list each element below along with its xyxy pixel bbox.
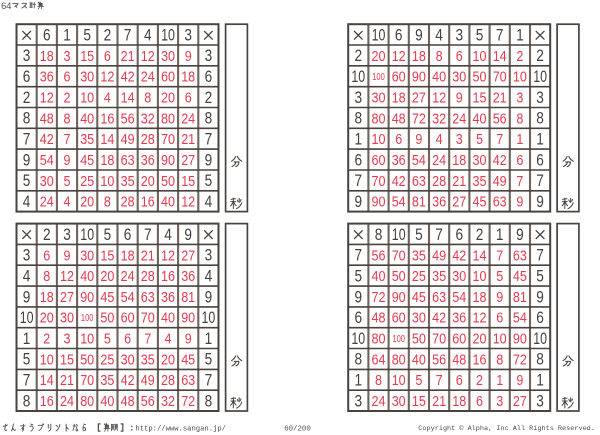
- svg-text:9: 9: [355, 193, 363, 211]
- svg-text:8: 8: [355, 351, 363, 369]
- svg-text:6: 6: [64, 69, 71, 86]
- svg-text:10: 10: [351, 330, 365, 348]
- svg-text:36: 36: [181, 268, 195, 285]
- svg-text:24: 24: [452, 110, 466, 127]
- svg-text:4: 4: [23, 193, 31, 211]
- svg-text:20: 20: [372, 48, 386, 65]
- svg-text:9: 9: [185, 331, 192, 348]
- svg-text:36: 36: [432, 194, 446, 211]
- svg-text:12: 12: [392, 48, 406, 65]
- svg-text:7: 7: [435, 226, 443, 244]
- svg-text:25: 25: [412, 268, 426, 285]
- svg-text:27: 27: [412, 90, 426, 107]
- svg-text:24: 24: [372, 393, 386, 410]
- svg-text:48: 48: [392, 110, 406, 127]
- svg-text:10: 10: [372, 26, 386, 44]
- svg-text:50: 50: [80, 351, 94, 368]
- svg-text:90: 90: [181, 310, 195, 327]
- svg-text:70: 70: [493, 69, 507, 86]
- svg-text:10: 10: [80, 90, 94, 107]
- svg-text:16: 16: [473, 351, 487, 368]
- svg-text:6: 6: [355, 309, 363, 327]
- svg-text:20: 20: [80, 194, 94, 211]
- svg-text:18: 18: [392, 90, 406, 107]
- svg-text:1: 1: [536, 372, 544, 390]
- svg-text:15: 15: [100, 247, 114, 264]
- svg-text:7: 7: [355, 172, 363, 190]
- svg-text:28: 28: [432, 173, 446, 190]
- svg-text:20: 20: [40, 310, 54, 327]
- svg-text:80: 80: [372, 331, 386, 348]
- svg-text:5: 5: [355, 268, 363, 286]
- svg-text:70: 70: [392, 247, 406, 264]
- svg-text:2: 2: [43, 226, 51, 244]
- svg-text:4: 4: [165, 331, 172, 348]
- svg-text:14: 14: [100, 131, 114, 148]
- svg-text:28: 28: [141, 131, 155, 148]
- svg-text:4: 4: [436, 131, 443, 148]
- svg-text:9: 9: [456, 90, 463, 107]
- svg-text:2: 2: [205, 89, 213, 107]
- svg-text:24: 24: [181, 110, 195, 127]
- svg-text:3: 3: [184, 26, 192, 44]
- svg-text:1: 1: [516, 26, 524, 44]
- svg-text:4: 4: [164, 226, 172, 244]
- svg-text:9: 9: [64, 247, 71, 264]
- svg-text:10: 10: [473, 48, 487, 65]
- svg-text:7: 7: [124, 26, 132, 44]
- svg-text:20: 20: [161, 351, 175, 368]
- svg-text:8: 8: [516, 110, 523, 127]
- svg-text:6: 6: [395, 131, 402, 148]
- svg-text:10: 10: [372, 131, 386, 148]
- svg-text:90: 90: [372, 194, 386, 211]
- svg-text:10: 10: [533, 330, 547, 348]
- svg-text:30: 30: [473, 152, 487, 169]
- svg-text:24: 24: [141, 69, 155, 86]
- svg-text:8: 8: [375, 226, 383, 244]
- svg-text:8: 8: [144, 90, 151, 107]
- svg-text:1: 1: [63, 26, 71, 44]
- svg-text:49: 49: [121, 131, 135, 148]
- svg-text:64: 64: [1, 1, 11, 11]
- svg-text:10: 10: [80, 226, 94, 244]
- svg-text:1: 1: [496, 372, 503, 389]
- svg-text:5: 5: [205, 172, 213, 190]
- svg-text:9: 9: [496, 289, 503, 306]
- svg-text:54: 54: [40, 152, 54, 169]
- svg-text:21: 21: [493, 90, 507, 107]
- svg-text:60: 60: [392, 310, 406, 327]
- svg-text:20: 20: [100, 268, 114, 285]
- svg-text:15: 15: [412, 393, 426, 410]
- svg-text:90: 90: [161, 152, 175, 169]
- svg-text:80: 80: [392, 351, 406, 368]
- svg-text:2: 2: [476, 226, 484, 244]
- svg-text:42: 42: [493, 152, 507, 169]
- svg-text:25: 25: [100, 351, 114, 368]
- svg-text:18: 18: [121, 247, 135, 264]
- svg-text:14: 14: [121, 90, 135, 107]
- svg-text:2: 2: [355, 47, 363, 65]
- svg-text:48: 48: [40, 110, 54, 127]
- svg-text:7: 7: [23, 131, 31, 149]
- svg-text:60: 60: [392, 69, 406, 86]
- svg-text:8: 8: [23, 392, 31, 410]
- svg-text:1: 1: [355, 372, 363, 390]
- svg-text:54: 54: [392, 194, 406, 211]
- svg-text:56: 56: [432, 351, 446, 368]
- svg-text:6: 6: [23, 68, 31, 86]
- svg-text:60: 60: [452, 331, 466, 348]
- svg-text:30: 30: [40, 173, 54, 190]
- svg-text:10: 10: [493, 331, 507, 348]
- svg-text:6: 6: [536, 309, 544, 327]
- svg-text:3: 3: [205, 247, 213, 265]
- svg-text:40: 40: [473, 110, 487, 127]
- svg-text:56: 56: [493, 110, 507, 127]
- svg-text:4: 4: [144, 26, 152, 44]
- svg-text:14: 14: [40, 372, 54, 389]
- svg-text:5: 5: [536, 268, 544, 286]
- svg-text:90: 90: [412, 69, 426, 86]
- svg-text:50: 50: [392, 268, 406, 285]
- svg-text:8: 8: [436, 48, 443, 65]
- svg-text:70: 70: [161, 131, 175, 148]
- svg-text:10: 10: [392, 226, 406, 244]
- svg-text:5: 5: [104, 226, 112, 244]
- svg-text:56: 56: [372, 247, 386, 264]
- svg-text:16: 16: [100, 110, 114, 127]
- svg-text:32: 32: [141, 110, 155, 127]
- svg-text:45: 45: [80, 152, 94, 169]
- svg-text:4: 4: [64, 194, 71, 211]
- svg-text:70: 70: [80, 372, 94, 389]
- svg-text:72: 72: [181, 393, 195, 410]
- svg-text:12: 12: [473, 310, 487, 327]
- svg-text:9: 9: [205, 151, 213, 169]
- svg-text:27: 27: [452, 194, 466, 211]
- svg-text:60: 60: [121, 310, 135, 327]
- svg-text:1: 1: [496, 226, 504, 244]
- svg-text:40: 40: [80, 110, 94, 127]
- svg-text:63: 63: [121, 152, 135, 169]
- svg-text:6: 6: [456, 226, 464, 244]
- svg-text:21: 21: [432, 393, 446, 410]
- svg-text:3: 3: [23, 47, 31, 65]
- svg-text:8: 8: [205, 392, 213, 410]
- svg-text:6: 6: [355, 151, 363, 169]
- svg-text:12: 12: [40, 90, 54, 107]
- svg-text:18: 18: [473, 289, 487, 306]
- svg-text:18: 18: [40, 289, 54, 306]
- svg-text:21: 21: [141, 247, 155, 264]
- svg-text:7: 7: [496, 26, 504, 44]
- svg-text:5: 5: [476, 26, 484, 44]
- svg-text:64: 64: [372, 351, 386, 368]
- svg-text:10: 10: [202, 309, 216, 327]
- svg-text:28: 28: [141, 268, 155, 285]
- svg-text:8: 8: [536, 351, 544, 369]
- svg-text:50: 50: [473, 69, 487, 86]
- svg-text:10: 10: [351, 68, 365, 86]
- svg-text:9: 9: [415, 26, 423, 44]
- svg-text:6: 6: [496, 310, 503, 327]
- svg-text:15: 15: [473, 90, 487, 107]
- svg-text:63: 63: [141, 289, 155, 306]
- svg-text:42: 42: [392, 173, 406, 190]
- svg-text:7: 7: [144, 226, 152, 244]
- svg-text:12: 12: [60, 268, 74, 285]
- svg-text:6: 6: [43, 247, 50, 264]
- svg-text:7: 7: [355, 247, 363, 265]
- svg-text:12: 12: [100, 69, 114, 86]
- svg-text:45: 45: [412, 289, 426, 306]
- svg-text:32: 32: [432, 110, 446, 127]
- svg-text:70: 70: [432, 331, 446, 348]
- svg-text:60: 60: [372, 152, 386, 169]
- svg-text:50: 50: [100, 310, 114, 327]
- svg-text:2: 2: [536, 47, 544, 65]
- svg-text:7: 7: [144, 331, 151, 348]
- svg-text:21: 21: [121, 48, 135, 65]
- svg-text:30: 30: [392, 393, 406, 410]
- svg-text:20: 20: [473, 331, 487, 348]
- svg-text:20: 20: [141, 173, 155, 190]
- svg-text:12: 12: [161, 247, 175, 264]
- svg-text:21: 21: [181, 131, 195, 148]
- svg-text:10: 10: [161, 26, 175, 44]
- svg-text:25: 25: [80, 173, 94, 190]
- svg-text:8: 8: [355, 110, 363, 128]
- svg-text:42: 42: [121, 372, 135, 389]
- svg-text:6: 6: [516, 152, 523, 169]
- svg-text:27: 27: [60, 289, 74, 306]
- svg-text:9: 9: [205, 288, 213, 306]
- svg-text:10: 10: [20, 309, 34, 327]
- svg-text:5: 5: [23, 172, 31, 190]
- svg-text:1: 1: [516, 131, 523, 148]
- svg-text:35: 35: [121, 173, 135, 190]
- svg-text:90: 90: [80, 289, 94, 306]
- svg-text:21: 21: [60, 372, 74, 389]
- svg-text:14: 14: [473, 247, 487, 264]
- svg-text:7: 7: [64, 131, 71, 148]
- svg-text:18: 18: [181, 69, 195, 86]
- svg-text:54: 54: [121, 289, 135, 306]
- svg-text:3: 3: [516, 90, 523, 107]
- svg-text:6: 6: [185, 90, 192, 107]
- svg-text:42: 42: [121, 69, 135, 86]
- svg-text:90: 90: [392, 289, 406, 306]
- svg-text:9: 9: [415, 131, 422, 148]
- svg-text:18: 18: [100, 152, 114, 169]
- svg-text:6: 6: [395, 26, 403, 44]
- svg-text:7: 7: [496, 131, 503, 148]
- svg-text:1: 1: [355, 131, 363, 149]
- svg-text:1: 1: [23, 330, 31, 348]
- svg-text:30: 30: [372, 90, 386, 107]
- svg-text:9: 9: [23, 288, 31, 306]
- svg-text:6: 6: [124, 331, 131, 348]
- svg-text:56: 56: [141, 393, 155, 410]
- svg-text:28: 28: [121, 194, 135, 211]
- svg-text:3: 3: [355, 89, 363, 107]
- svg-text:6: 6: [124, 226, 132, 244]
- svg-text:10: 10: [473, 268, 487, 285]
- svg-text:5: 5: [496, 268, 503, 285]
- svg-text:9: 9: [355, 288, 363, 306]
- svg-text:6: 6: [43, 26, 51, 44]
- svg-text:30: 30: [60, 310, 74, 327]
- svg-text:80: 80: [80, 393, 94, 410]
- svg-text:5: 5: [83, 26, 91, 44]
- svg-text:7: 7: [205, 372, 213, 390]
- svg-text:81: 81: [412, 194, 426, 211]
- svg-text:12: 12: [141, 48, 155, 65]
- svg-text:http://www.sangan.jp/: http://www.sangan.jp/: [135, 425, 226, 433]
- svg-text:3: 3: [64, 48, 71, 65]
- svg-text:60: 60: [161, 69, 175, 86]
- svg-text:4: 4: [23, 268, 31, 286]
- svg-text:6: 6: [104, 48, 111, 65]
- svg-text:30: 30: [161, 48, 175, 65]
- svg-text:10: 10: [533, 68, 547, 86]
- svg-text:40: 40: [80, 268, 94, 285]
- svg-text:80: 80: [372, 110, 386, 127]
- svg-text:81: 81: [181, 289, 195, 306]
- svg-text:9: 9: [185, 48, 192, 65]
- svg-text:45: 45: [181, 351, 195, 368]
- svg-text:30: 30: [452, 268, 466, 285]
- svg-text:30: 30: [412, 310, 426, 327]
- svg-text:63: 63: [432, 289, 446, 306]
- svg-text:30: 30: [452, 69, 466, 86]
- svg-text:3: 3: [63, 226, 71, 244]
- svg-text:2: 2: [64, 90, 71, 107]
- svg-text:5: 5: [415, 226, 423, 244]
- svg-text:9: 9: [516, 226, 524, 244]
- svg-text:30: 30: [80, 69, 94, 86]
- svg-text:10: 10: [40, 351, 54, 368]
- svg-text:100: 100: [392, 334, 405, 345]
- svg-text:40: 40: [372, 268, 386, 285]
- svg-text:10: 10: [513, 69, 527, 86]
- svg-text:5: 5: [23, 351, 31, 369]
- svg-text:54: 54: [452, 289, 466, 306]
- svg-text:2: 2: [476, 372, 483, 389]
- svg-text:72: 72: [412, 110, 426, 127]
- svg-text:54: 54: [412, 152, 426, 169]
- svg-text:5: 5: [415, 372, 422, 389]
- svg-text:36: 36: [161, 289, 175, 306]
- svg-text:30: 30: [121, 351, 135, 368]
- svg-text:48: 48: [121, 393, 135, 410]
- svg-text:36: 36: [392, 152, 406, 169]
- svg-text:7: 7: [516, 173, 523, 190]
- svg-text:8: 8: [104, 194, 111, 211]
- svg-text:10: 10: [100, 173, 114, 190]
- svg-text:4: 4: [205, 268, 213, 286]
- svg-text:7: 7: [536, 172, 544, 190]
- svg-text:35: 35: [141, 351, 155, 368]
- svg-text:35: 35: [473, 173, 487, 190]
- svg-text:70: 70: [372, 173, 386, 190]
- svg-text:72: 72: [513, 351, 527, 368]
- svg-text:50: 50: [412, 331, 426, 348]
- svg-text:63: 63: [181, 372, 195, 389]
- svg-text:5: 5: [476, 131, 483, 148]
- svg-text:12: 12: [432, 90, 446, 107]
- svg-text:35: 35: [100, 372, 114, 389]
- svg-text:15: 15: [181, 173, 195, 190]
- svg-text:49: 49: [141, 372, 155, 389]
- svg-text:36: 36: [141, 152, 155, 169]
- svg-text:15: 15: [80, 48, 94, 65]
- svg-text:70: 70: [141, 310, 155, 327]
- svg-text:9: 9: [64, 152, 71, 169]
- svg-text:9: 9: [536, 193, 544, 211]
- svg-text:10: 10: [392, 372, 406, 389]
- svg-text:4: 4: [435, 26, 443, 44]
- svg-text:40: 40: [412, 351, 426, 368]
- svg-text:9: 9: [516, 194, 523, 211]
- svg-text:48: 48: [452, 351, 466, 368]
- svg-text:28: 28: [161, 372, 175, 389]
- svg-text:9: 9: [516, 372, 523, 389]
- svg-text:3: 3: [355, 392, 363, 410]
- svg-text:10: 10: [80, 331, 94, 348]
- svg-text:35: 35: [432, 268, 446, 285]
- svg-text:40: 40: [161, 310, 175, 327]
- svg-text:4: 4: [104, 90, 111, 107]
- svg-text:24: 24: [121, 268, 135, 285]
- svg-text:63: 63: [493, 194, 507, 211]
- svg-text:24: 24: [40, 194, 54, 211]
- svg-text:2: 2: [104, 26, 112, 44]
- svg-text:8: 8: [43, 268, 50, 285]
- svg-text:9: 9: [184, 226, 192, 244]
- svg-text:24: 24: [60, 393, 74, 410]
- svg-text:8: 8: [375, 372, 382, 389]
- svg-text:9: 9: [536, 288, 544, 306]
- svg-text:40: 40: [432, 69, 446, 86]
- svg-text:18: 18: [452, 152, 466, 169]
- svg-text:45: 45: [513, 268, 527, 285]
- svg-text:1: 1: [536, 131, 544, 149]
- svg-text:2: 2: [516, 48, 523, 65]
- svg-text:8: 8: [536, 110, 544, 128]
- svg-text:7: 7: [23, 372, 31, 390]
- svg-text:24: 24: [432, 152, 446, 169]
- svg-text:5: 5: [205, 351, 213, 369]
- svg-text:Copyright © Alpha, Inc All Rig: Copyright © Alpha, Inc All Rights Reserv…: [418, 424, 595, 433]
- svg-text:2: 2: [43, 331, 50, 348]
- svg-text:12: 12: [181, 194, 195, 211]
- svg-text:3: 3: [23, 247, 31, 265]
- svg-text:4: 4: [205, 193, 213, 211]
- svg-text:6: 6: [456, 48, 463, 65]
- svg-text:7: 7: [436, 372, 443, 389]
- svg-text:3: 3: [205, 47, 213, 65]
- svg-text:18: 18: [452, 393, 466, 410]
- svg-text:5: 5: [104, 331, 111, 348]
- svg-text:7: 7: [536, 247, 544, 265]
- svg-text:8: 8: [64, 110, 71, 127]
- svg-text:18: 18: [40, 48, 54, 65]
- svg-text:30: 30: [80, 247, 94, 264]
- svg-text:63: 63: [412, 173, 426, 190]
